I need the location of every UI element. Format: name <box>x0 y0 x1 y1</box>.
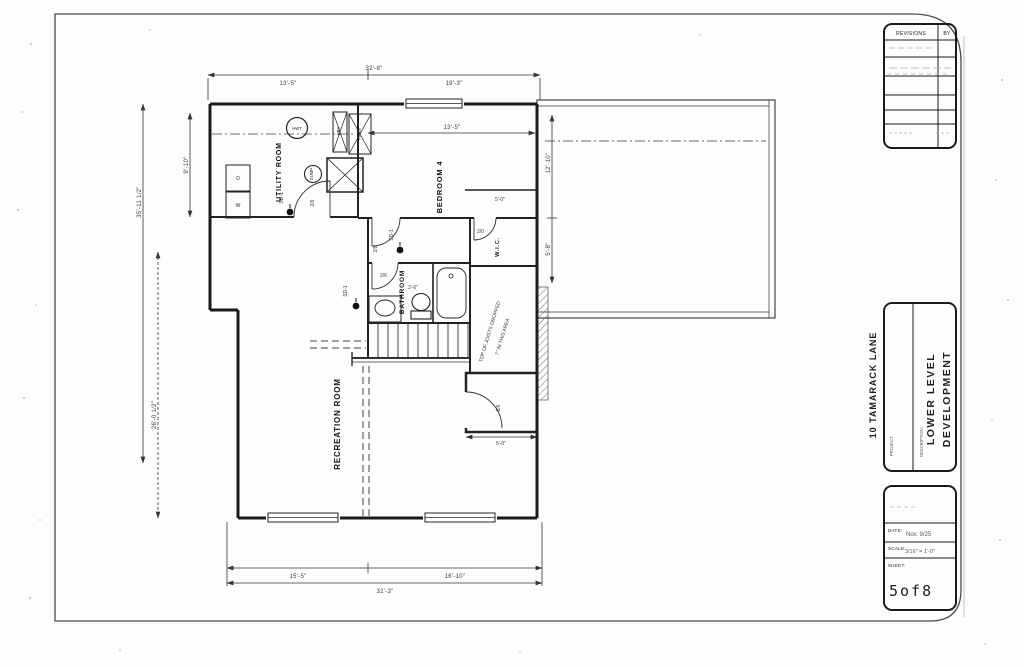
date-label: DATE: <box>888 528 902 533</box>
windows <box>266 96 497 524</box>
hwt-label: HWT <box>292 126 302 131</box>
dim-landing: 5'-0" <box>496 441 506 447</box>
sump-label: SUMP <box>309 168 314 180</box>
hatched-wall-section <box>538 287 548 400</box>
sheet-number: 5of8 <box>889 582 933 600</box>
dim-bedroom-closet: 5'-0" <box>495 197 505 203</box>
sheet-info-block: DATE: Nov. 9/25 SCALE: 3/16" = 1'-0" SHE… <box>884 486 956 610</box>
revisions-block: REVISIONS BY <box>884 24 956 148</box>
description-label: DESCRIPTION: <box>919 427 924 457</box>
dim-right-upper: 12'-10" <box>546 153 552 174</box>
date-value: Nov. 9/25 <box>906 532 932 538</box>
dim-left-inner: 9'-10" <box>184 156 190 173</box>
extension-outline <box>537 100 775 318</box>
exterior-walls <box>210 104 537 518</box>
dryer-label: D <box>236 176 240 182</box>
furnace-label: FURN <box>357 128 362 140</box>
project-title-block: 10 TAMARACK LANE PROJECT: DESCRIPTION: L… <box>868 303 956 471</box>
washer: W <box>226 192 250 218</box>
dim-bathroom: 3'-6" <box>408 285 418 291</box>
bathtub <box>433 263 470 323</box>
dim-bottom-left: 15'-5" <box>289 574 306 580</box>
blueprint-sheet: HWT SUMP HRV FURN D W <box>0 0 1024 667</box>
toilet <box>411 294 431 320</box>
interior-walls <box>210 104 537 432</box>
dim-bedroom-width: 13'-5" <box>443 125 460 131</box>
project-label: PROJECT: <box>889 436 894 456</box>
room-label-recreation: RECREATION ROOM <box>333 378 342 469</box>
vanity-sink <box>369 296 401 322</box>
bedroom-door-label: 2/8 <box>373 245 379 252</box>
room-label-wic: W.I.C. <box>495 237 501 257</box>
scale-value: 3/16" = 1'-0" <box>905 549 935 555</box>
joist-note-line2: 7" IN THIS AREA <box>494 317 511 356</box>
sheet-label: SHEET: <box>888 563 906 568</box>
dryer: D <box>226 165 250 191</box>
revisions-by-col: BY <box>943 31 951 37</box>
room-label-bedroom4: BEDROOM 4 <box>435 161 444 214</box>
sd1-label-hall: SD-1 <box>389 229 395 241</box>
stairs <box>352 323 470 366</box>
hrv-label: HRV <box>336 126 341 135</box>
description-line2: DEVELOPMENT <box>941 351 953 447</box>
dim-top-left: 13'-5" <box>279 81 296 87</box>
dim-bottom-right: 16'-10" <box>445 574 466 580</box>
utility-door-label: 2/6 <box>310 199 316 206</box>
dim-left-lower: 26'-0 1/2" <box>152 401 158 429</box>
floor-plan: HWT SUMP HRV FURN D W <box>137 66 775 595</box>
dim-top-right: 19'-3" <box>445 81 462 87</box>
project-name: 10 TAMARACK LANE <box>868 332 878 439</box>
paper-noise <box>17 29 1009 653</box>
bathroom-door-label: 2/6 <box>380 273 387 279</box>
dim-top-overall: 32'-8" <box>365 66 382 72</box>
hrv-unit: HRV <box>333 112 347 152</box>
dim-right-lower: 5'-8" <box>546 242 552 255</box>
wic-door-label: 2/0 <box>477 229 484 235</box>
washer-label: W <box>236 203 241 209</box>
room-label-bathroom: BATHROOM <box>399 270 406 314</box>
description-line1: LOWER LEVEL <box>925 353 937 445</box>
scanned-drawing-sheet: HWT SUMP HRV FURN D W <box>0 0 1024 667</box>
dimension-lines <box>143 70 557 586</box>
room-label-utility: UTILITY ROOM <box>276 142 283 202</box>
scale-label: SCALE: <box>888 546 906 551</box>
exterior-door-label: 2/6 <box>496 404 502 411</box>
dim-bottom-overall: 32'-3" <box>376 589 393 595</box>
sd1-label-bathroom: SD-1 <box>343 285 349 297</box>
revision-pencil-entries <box>887 48 951 133</box>
hot-water-tank: HWT <box>287 118 308 139</box>
dim-left-outer: 35'-11 1/2" <box>137 186 143 217</box>
sump-pit: SUMP <box>305 166 322 183</box>
revisions-title: REVISIONS <box>896 31 926 37</box>
joist-note: TOP OF JOISTS DROPPED 7" IN THIS AREA <box>478 300 512 363</box>
